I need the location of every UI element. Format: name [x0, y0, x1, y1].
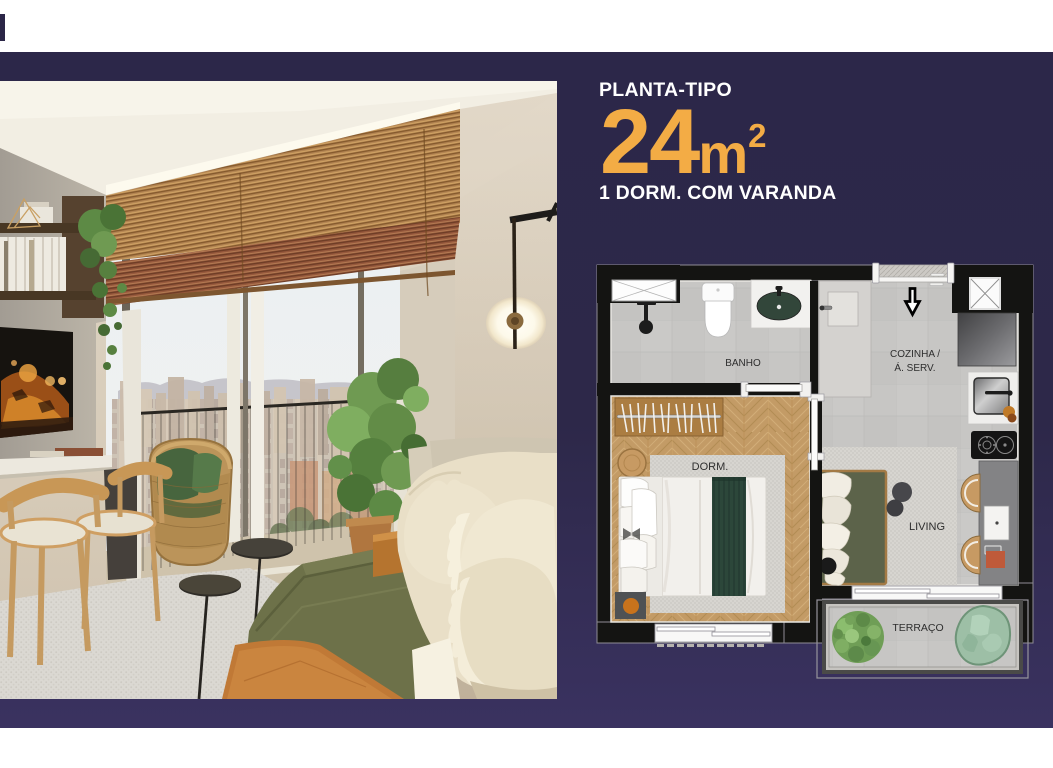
svg-text:COZINHA /: COZINHA /	[890, 349, 940, 360]
svg-text:Á. SERV.: Á. SERV.	[894, 361, 935, 374]
svg-text:TERRAÇO: TERRAÇO	[892, 622, 943, 634]
svg-text:BANHO: BANHO	[725, 358, 761, 369]
svg-text:DORM.: DORM.	[692, 461, 729, 473]
svg-text:LIVING: LIVING	[909, 521, 945, 533]
